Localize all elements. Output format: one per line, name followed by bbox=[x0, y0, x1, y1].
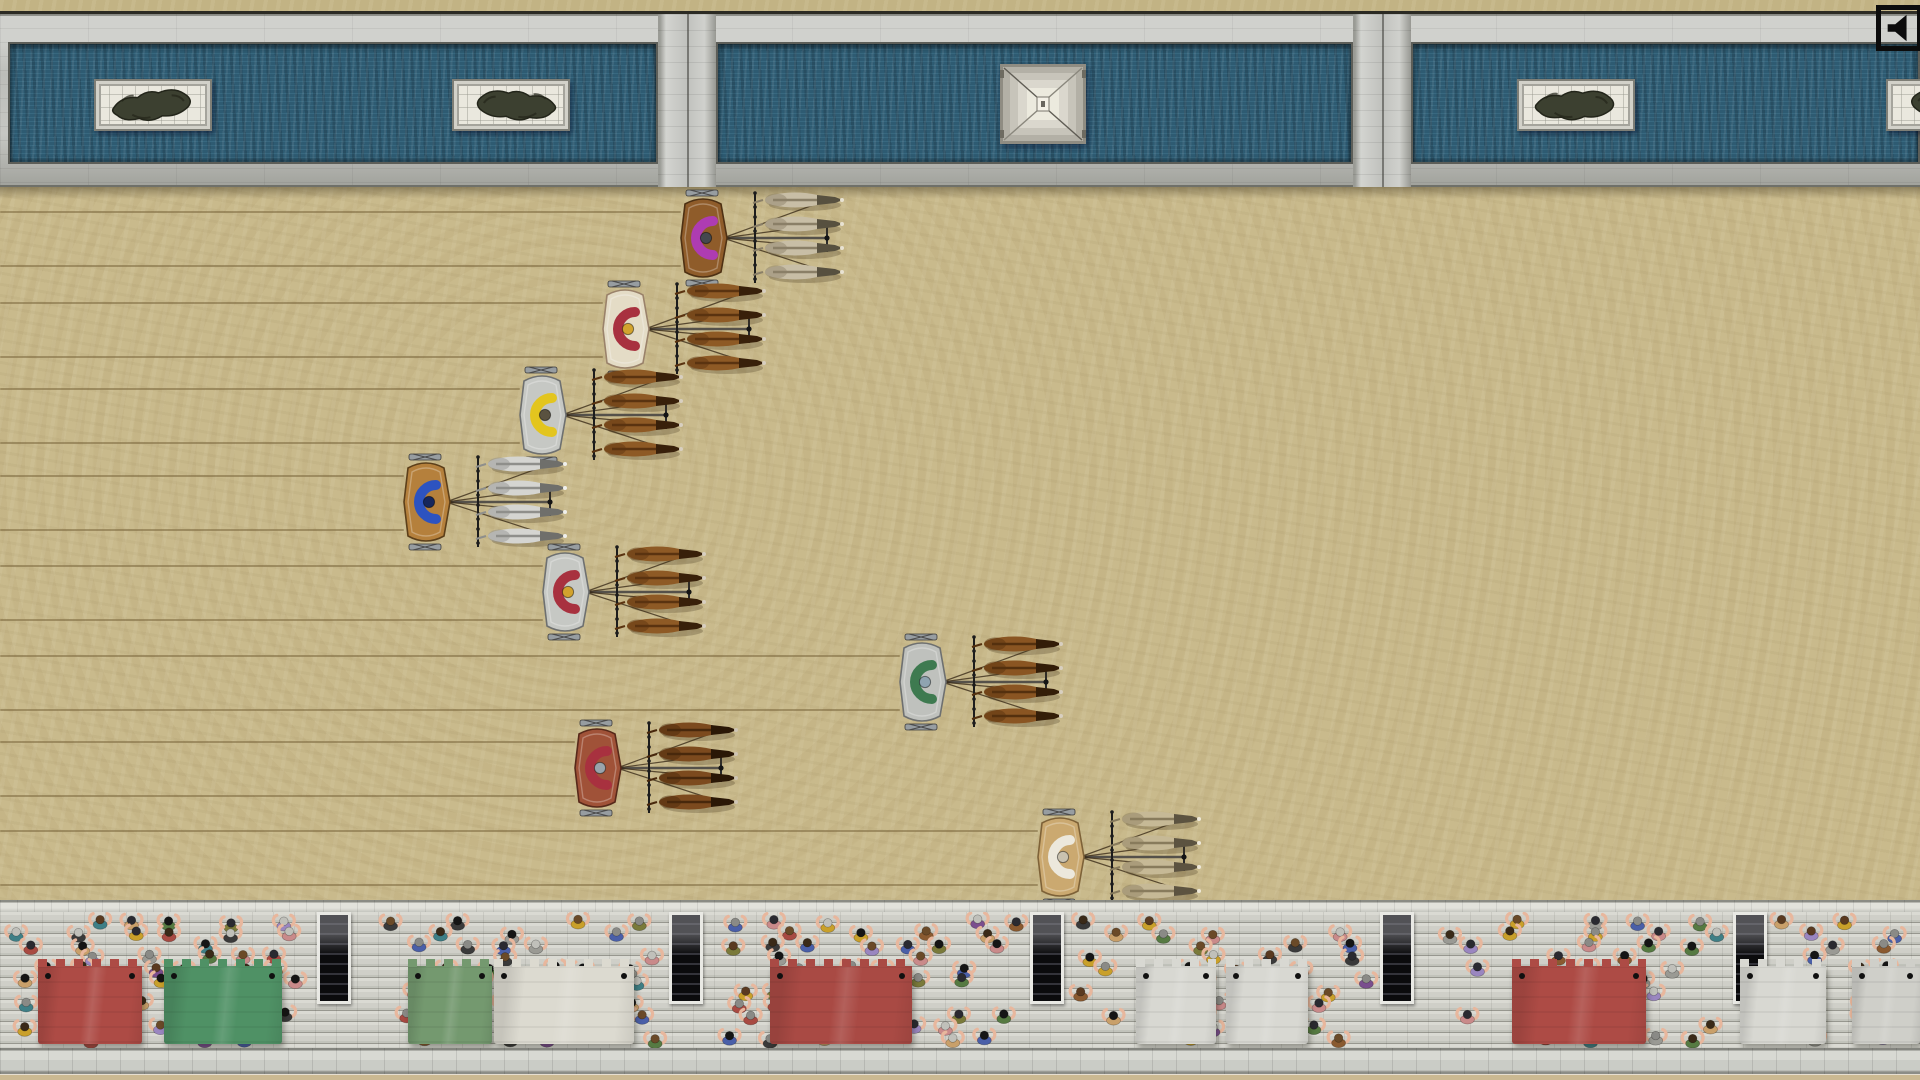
speaker-icon bbox=[1882, 11, 1916, 45]
awning-grommet bbox=[45, 973, 51, 979]
wheel-rut bbox=[0, 388, 520, 390]
awning-edge bbox=[38, 959, 142, 967]
statue-platform bbox=[1886, 79, 1920, 131]
chariot-red[interactable] bbox=[539, 542, 709, 642]
chariot-yellow[interactable] bbox=[516, 365, 686, 465]
awning-grommet bbox=[1143, 973, 1149, 979]
stairway-entrance bbox=[669, 912, 703, 1004]
green-awning bbox=[164, 966, 282, 1044]
awning-grommet bbox=[1519, 973, 1525, 979]
stairway-entrance bbox=[1380, 912, 1414, 1004]
awning-grommet bbox=[1859, 973, 1865, 979]
awning-grommet bbox=[777, 973, 783, 979]
awning-grommet bbox=[171, 973, 177, 979]
wheel-rut bbox=[0, 619, 543, 621]
chariot-graphic bbox=[539, 542, 709, 642]
awning-grommet bbox=[415, 973, 421, 979]
chariot-graphic bbox=[599, 279, 769, 379]
awning-grommet bbox=[1295, 973, 1301, 979]
chariot-red[interactable] bbox=[599, 279, 769, 379]
mute-button[interactable] bbox=[1876, 5, 1920, 51]
awning-grommet bbox=[899, 973, 905, 979]
wheel-rut bbox=[0, 741, 575, 743]
grandstand bbox=[0, 912, 1920, 1048]
far-track-strip bbox=[0, 0, 1920, 14]
wheel-rut bbox=[0, 356, 603, 358]
white-awning bbox=[1226, 966, 1308, 1044]
bronze-statue-1 bbox=[102, 86, 208, 126]
awning-grommet bbox=[501, 973, 507, 979]
awning-grommet bbox=[1633, 973, 1639, 979]
awning-edge bbox=[1136, 959, 1216, 967]
bronze-statue-2 bbox=[460, 86, 566, 126]
red-awning bbox=[770, 966, 912, 1044]
statue-platform bbox=[452, 79, 570, 131]
awning-edge bbox=[1740, 959, 1826, 967]
white-awning bbox=[1740, 966, 1826, 1044]
awning-grommet bbox=[129, 973, 135, 979]
race-track bbox=[0, 187, 1920, 900]
awning-edge bbox=[494, 959, 634, 967]
bottom-edge-strip bbox=[0, 1074, 1920, 1080]
awning-grommet bbox=[1813, 973, 1819, 979]
awning-grommet bbox=[1233, 973, 1239, 979]
wheel-rut bbox=[0, 211, 681, 213]
statue-platform bbox=[1517, 79, 1635, 131]
chariot-green[interactable] bbox=[896, 632, 1066, 732]
wheel-rut bbox=[0, 655, 900, 657]
podium-walkway bbox=[0, 1048, 1920, 1074]
chariot-graphic bbox=[677, 188, 847, 288]
awning-grommet bbox=[1203, 973, 1209, 979]
white-awning bbox=[1852, 966, 1920, 1044]
awning-edge bbox=[770, 959, 912, 967]
wheel-rut bbox=[0, 830, 1038, 832]
awning-edge bbox=[1852, 959, 1920, 967]
chariot-graphic bbox=[896, 632, 1066, 732]
wheel-rut bbox=[0, 442, 520, 444]
awning-edge bbox=[1226, 959, 1308, 967]
awning-grommet bbox=[621, 973, 627, 979]
red-awning bbox=[1512, 966, 1646, 1044]
awning-grommet bbox=[479, 973, 485, 979]
spina-divider bbox=[1353, 14, 1411, 187]
wheel-rut bbox=[0, 265, 681, 267]
pyramid-top-view bbox=[1000, 64, 1086, 144]
chariot-graphic bbox=[516, 365, 686, 465]
circus-race-screen: { "scene": { "name": "top-down chariot r… bbox=[0, 0, 1920, 1080]
chariot-white[interactable] bbox=[1034, 807, 1204, 907]
awning-grommet bbox=[1907, 973, 1913, 979]
wheel-rut bbox=[0, 709, 900, 711]
awning-grommet bbox=[269, 973, 275, 979]
green-awning bbox=[408, 966, 492, 1044]
stairway-entrance bbox=[317, 912, 351, 1004]
cream-awning bbox=[494, 966, 634, 1044]
chariot-graphic bbox=[400, 452, 570, 552]
bronze-statue-3 bbox=[1525, 86, 1631, 126]
statue-platform bbox=[94, 79, 212, 131]
awning-grommet bbox=[1747, 973, 1753, 979]
chariot-purple[interactable] bbox=[677, 188, 847, 288]
wheel-rut bbox=[0, 884, 1038, 886]
chariot-graphic bbox=[1034, 807, 1204, 907]
wheel-rut bbox=[0, 795, 575, 797]
red-awning bbox=[38, 966, 142, 1044]
stairway-entrance bbox=[1030, 912, 1064, 1004]
podium-wall bbox=[0, 900, 1920, 912]
awning-edge bbox=[164, 959, 282, 967]
spina-divider bbox=[658, 14, 716, 187]
awning-edge bbox=[1512, 959, 1646, 967]
stepped-pyramid-monument bbox=[1000, 64, 1086, 144]
wheel-rut bbox=[0, 302, 603, 304]
water-basin bbox=[1411, 42, 1920, 164]
wheel-rut bbox=[0, 529, 404, 531]
bronze-statue-4 bbox=[1894, 86, 1920, 126]
wheel-rut bbox=[0, 565, 543, 567]
wheel-rut bbox=[0, 475, 404, 477]
chariot-graphic bbox=[571, 718, 741, 818]
white-awning bbox=[1136, 966, 1216, 1044]
spina-wall bbox=[0, 14, 1920, 187]
awning-edge bbox=[408, 959, 492, 967]
chariot-blue[interactable] bbox=[400, 452, 570, 552]
chariot-red[interactable] bbox=[571, 718, 741, 818]
